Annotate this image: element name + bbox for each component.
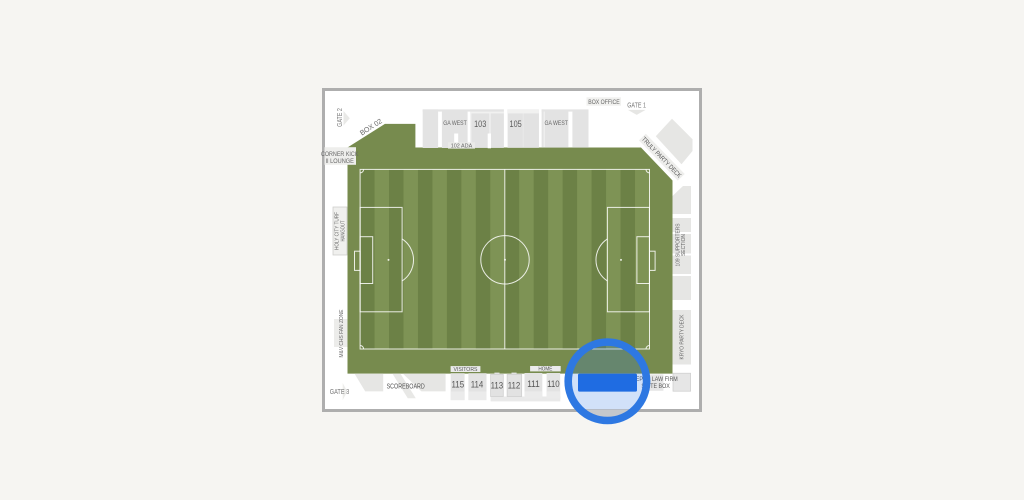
svg-text:HANGOUT: HANGOUT (341, 220, 347, 242)
svg-text:103: 103 (474, 119, 486, 129)
svg-text:110: 110 (547, 379, 560, 389)
svg-text:GA WEST: GA WEST (544, 120, 568, 127)
svg-text:115: 115 (452, 379, 465, 389)
svg-text:113: 113 (491, 381, 504, 391)
svg-text:GATE 2: GATE 2 (337, 108, 344, 127)
svg-text:112: 112 (508, 381, 521, 391)
svg-text:102 ADA: 102 ADA (451, 143, 473, 149)
svg-text:114: 114 (471, 379, 484, 389)
svg-text:VISITORS: VISITORS (454, 367, 478, 373)
svg-text:GA WEST: GA WEST (443, 120, 467, 127)
svg-text:GATE 3: GATE 3 (330, 389, 350, 396)
svg-text:CORNER KICK: CORNER KICK (321, 151, 359, 158)
svg-text:SECTION: SECTION (681, 234, 687, 256)
svg-text:GATE 1: GATE 1 (627, 102, 646, 109)
svg-text:BOX OFFICE: BOX OFFICE (588, 99, 620, 106)
svg-text:II LOUNGE: II LOUNGE (325, 158, 354, 165)
svg-text:HOME: HOME (538, 367, 552, 373)
svg-text:M&V CHS FAN ZONE: M&V CHS FAN ZONE (339, 309, 345, 357)
svg-text:105: 105 (510, 119, 522, 129)
svg-text:111: 111 (527, 379, 540, 389)
svg-text:SCOREBOARD: SCOREBOARD (387, 384, 425, 391)
svg-text:KRYO PARTY DECK: KRYO PARTY DECK (680, 314, 686, 359)
